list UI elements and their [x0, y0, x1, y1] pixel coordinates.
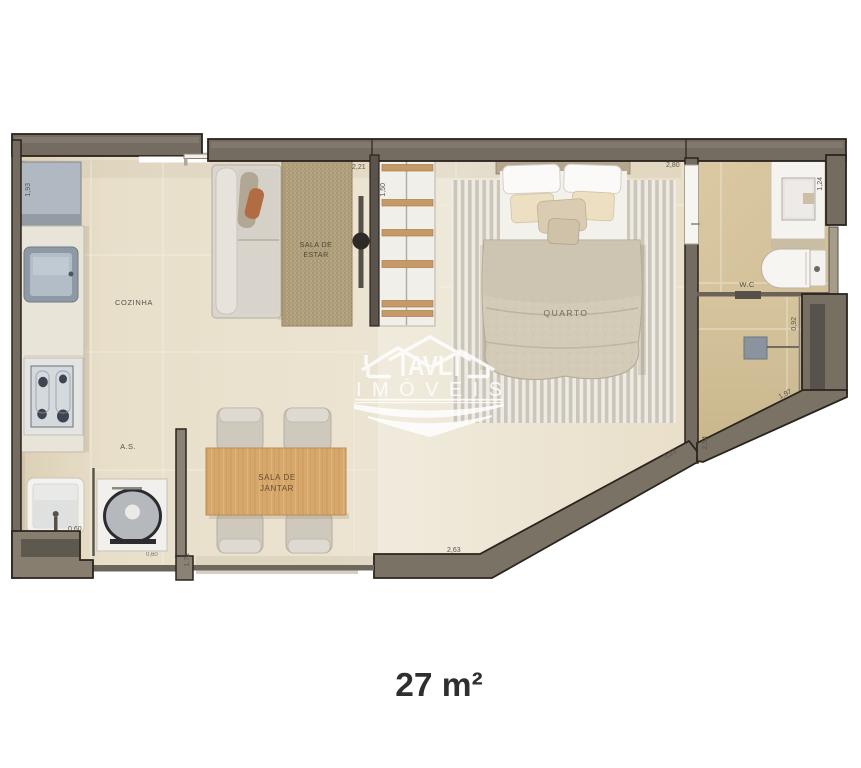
svg-text:1,71: 1,71	[184, 553, 191, 567]
svg-text:W.C: W.C	[739, 280, 755, 289]
svg-text:27 m²: 27 m²	[395, 667, 483, 704]
svg-text:1,50: 1,50	[380, 183, 387, 197]
svg-text:JANTAR: JANTAR	[260, 484, 294, 493]
svg-text:COZINHA: COZINHA	[115, 298, 153, 307]
svg-text:2,63: 2,63	[447, 547, 461, 554]
svg-text:AVL: AVL	[408, 350, 452, 381]
svg-text:2,54: 2,54	[702, 436, 709, 450]
svg-text:0,60: 0,60	[68, 526, 82, 533]
svg-text:1,93: 1,93	[25, 183, 32, 197]
svg-text:A.S.: A.S.	[120, 442, 136, 451]
svg-text:QUARTO: QUARTO	[543, 308, 588, 318]
svg-text:SALA DE: SALA DE	[258, 473, 296, 482]
svg-text:2,21: 2,21	[352, 164, 366, 171]
svg-text:0,92: 0,92	[791, 317, 798, 331]
svg-text:1,24: 1,24	[817, 177, 824, 191]
svg-text:ESTAR: ESTAR	[303, 252, 328, 259]
svg-text:2,80: 2,80	[666, 162, 680, 169]
svg-text:SALA DE: SALA DE	[300, 242, 333, 249]
svg-text:0,60: 0,60	[146, 552, 158, 558]
